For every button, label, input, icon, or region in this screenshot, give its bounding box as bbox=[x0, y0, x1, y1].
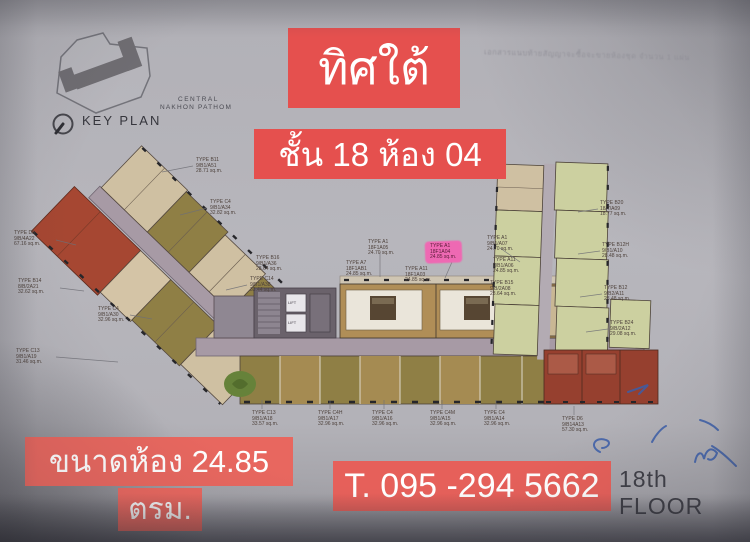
lift-label: LIFT bbox=[288, 320, 296, 325]
bottom-wing bbox=[224, 356, 562, 404]
key-plan-title: KEY PLAN bbox=[82, 113, 161, 128]
room-size-overlay-line2: ตรม. bbox=[118, 488, 202, 531]
unit-label: TYPE B2018/7/A0918.77 sq.m. bbox=[600, 201, 626, 218]
unit-label: TYPE A119/B1/A0624.85 sq.m. bbox=[493, 258, 519, 275]
unit-label: TYPE C49/B1/A1432.96 sq.m. bbox=[484, 411, 510, 428]
unit-label: TYPE C49/B1/A3032.96 sq.m. bbox=[98, 307, 124, 324]
unit-label: TYPE A19/B1/A0724.70 sq.m. bbox=[487, 236, 513, 253]
unit-label: TYPE B119/B1/A5128.71 sq.m. bbox=[196, 158, 222, 175]
room-size-overlay-line1: ขนาดห้อง 24.85 bbox=[25, 437, 293, 486]
unit-label: TYPE D69/B14A1357.30 sq.m. bbox=[562, 417, 588, 434]
unit-label: TYPE C139/B1/A1931.46 sq.m. bbox=[16, 349, 42, 366]
project-name-line2: NAKHON PATHOM bbox=[160, 104, 232, 111]
unit-label: TYPE D59/B/4A2267.16 sq.m. bbox=[14, 231, 40, 248]
unit-label: TYPE A1118F1A0324.85 sq.m. bbox=[405, 267, 431, 284]
unit-label: TYPE A718F1AB124.85 sq.m. bbox=[346, 261, 372, 278]
project-name-line1: CENTRAL bbox=[178, 96, 219, 103]
floor-number-label: 18th FLOOR bbox=[619, 466, 750, 520]
unit-label: TYPE C139/B1/A1833.57 sq.m. bbox=[252, 411, 278, 428]
unit-label: TYPE B159/B/2A0828.64 sq.m. bbox=[490, 281, 516, 298]
unit-label-highlighted: TYPE A118F1A0424.85 sq.m. bbox=[430, 244, 456, 261]
photo-of-floor-plan-sheet: TYPE B119/B1/A5128.71 sq.m.TYPE C49/B1/A… bbox=[0, 0, 750, 542]
unit-label: TYPE B249/B/2A1229.08 sq.m. bbox=[610, 321, 636, 338]
unit-label: TYPE B12H9/B1/A1028.48 sq.m. bbox=[602, 243, 629, 260]
unit-label: TYPE C49/B1/A3432.82 sq.m. bbox=[210, 200, 236, 217]
unit-label: TYPE B169/B1/A3628.64 sq.m. bbox=[256, 256, 282, 273]
unit-label: TYPE C4H9/B1/A1732.96 sq.m. bbox=[318, 411, 344, 428]
phone-number-overlay: T. 095 -294 5662 bbox=[333, 461, 611, 511]
unit-label: TYPE C149/B1/A3833.44 sq.m. bbox=[250, 277, 276, 294]
floor-room-overlay: ชั้น 18 ห้อง 04 bbox=[254, 129, 506, 179]
unit-label: TYPE A118F1A0524.70 sq.m. bbox=[368, 240, 394, 257]
unit-label: TYPE C4M9/B1/A1532.96 sq.m. bbox=[430, 411, 456, 428]
direction-overlay: ทิศใต้ bbox=[288, 28, 460, 108]
unit-label: TYPE B148/B/2A2132.62 sq.m. bbox=[18, 279, 44, 296]
lift-label: LIFT bbox=[288, 300, 296, 305]
red-unit-block bbox=[544, 350, 658, 404]
unit-label: TYPE B129/B2/A1128.48 sq.m. bbox=[604, 286, 630, 303]
unit-label: TYPE C49/B1/A1632.96 sq.m. bbox=[372, 411, 398, 428]
